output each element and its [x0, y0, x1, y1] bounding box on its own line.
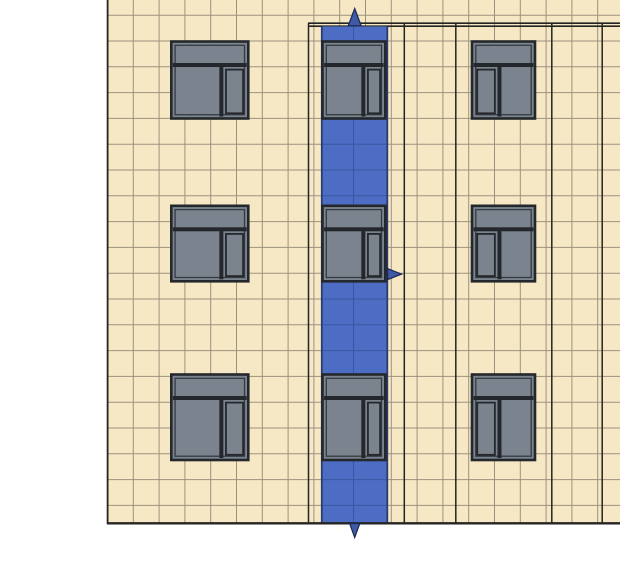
window-transom-divider — [324, 396, 384, 400]
window-row2-left[interactable] — [171, 206, 248, 281]
window-casement-sash — [368, 70, 380, 114]
window-casement-sash — [226, 70, 243, 114]
window-row3-center[interactable] — [323, 375, 386, 461]
window-casement-sash — [477, 234, 495, 276]
window-pane-divider — [219, 230, 223, 279]
window-pane-divider — [219, 66, 223, 117]
window-transom-divider — [324, 227, 384, 231]
window-pane-divider — [497, 230, 501, 279]
window-casement-sash — [477, 70, 495, 114]
window-row3-right[interactable] — [472, 375, 535, 461]
window-casement-sash — [477, 403, 495, 455]
window-pane-divider — [497, 66, 501, 117]
window-transom-divider — [173, 396, 247, 400]
window-transom-divider — [173, 227, 247, 231]
window-pane-divider — [361, 399, 365, 458]
window-casement-sash — [368, 234, 380, 276]
window-pane-divider — [497, 399, 501, 458]
window-row2-right[interactable] — [472, 206, 535, 281]
window-transom-divider — [173, 63, 247, 67]
window-casement-sash — [226, 234, 243, 276]
window-row3-left[interactable] — [171, 375, 248, 461]
window-pane-divider — [361, 230, 365, 279]
window-row1-left[interactable] — [171, 42, 248, 119]
window-row1-center[interactable] — [323, 42, 386, 119]
selection-arrow-down-icon[interactable] — [350, 524, 360, 538]
window-pane-divider — [361, 66, 365, 117]
window-row2-center[interactable] — [323, 206, 386, 281]
window-transom-divider — [474, 63, 534, 67]
window-transom-divider — [324, 63, 384, 67]
elevation-drawing — [0, 0, 620, 577]
window-casement-sash — [226, 403, 243, 455]
window-row1-right[interactable] — [472, 42, 535, 119]
cad-viewport — [0, 0, 620, 577]
window-pane-divider — [219, 399, 223, 458]
window-transom-divider — [474, 396, 534, 400]
window-transom-divider — [474, 227, 534, 231]
window-casement-sash — [368, 403, 380, 455]
